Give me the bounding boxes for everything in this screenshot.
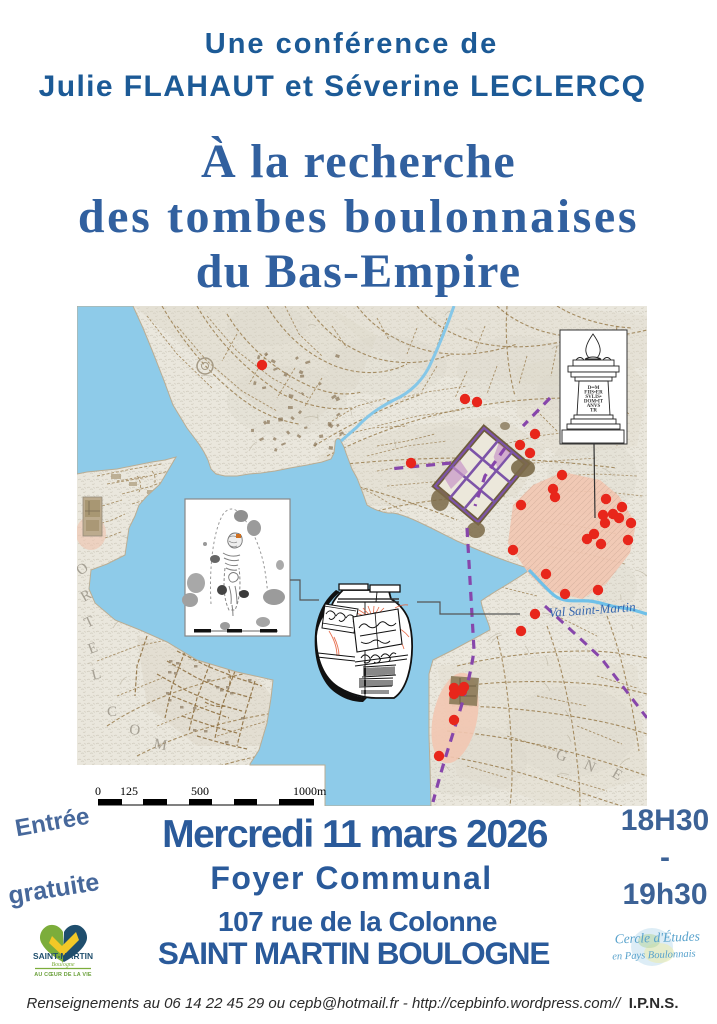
svg-text:0: 0 [95, 784, 101, 798]
svg-text:M: M [152, 736, 168, 754]
svg-text:en Pays Boulonnais: en Pays Boulonnais [612, 949, 696, 963]
svg-text:TR: TR [590, 409, 597, 414]
svg-text:Boulogne: Boulogne [52, 962, 75, 968]
svg-text:SAINT-MARTIN: SAINT-MARTIN [33, 951, 93, 961]
svg-text:500: 500 [191, 784, 209, 798]
svg-text:O: O [129, 722, 141, 739]
svg-text:C: C [107, 704, 117, 720]
svg-text:AU CŒUR DE LA VIE: AU CŒUR DE LA VIE [34, 972, 92, 978]
svg-text:1000m: 1000m [293, 784, 327, 798]
svg-text:Cercle d'Études: Cercle d'Études [614, 928, 700, 946]
svg-text:125: 125 [120, 784, 138, 798]
